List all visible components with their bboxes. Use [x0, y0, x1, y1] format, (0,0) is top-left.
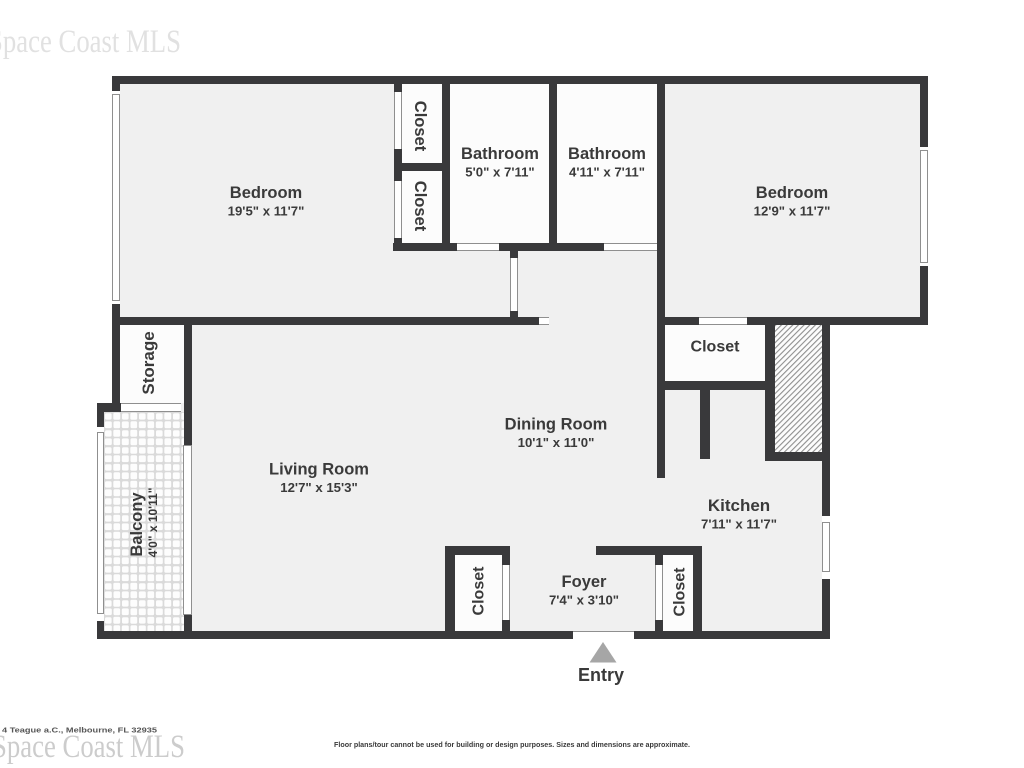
- svg-text:4 Teague a.C., Melbourne, FL 3: 4 Teague a.C., Melbourne, FL 32935: [2, 726, 157, 735]
- svg-text:Closet: Closet: [672, 567, 689, 617]
- svg-text:12'7" x 15'3": 12'7" x 15'3": [280, 480, 357, 495]
- svg-text:19'5" x 11'7": 19'5" x 11'7": [228, 204, 305, 219]
- svg-text:Bedroom: Bedroom: [230, 184, 302, 202]
- svg-text:Bathroom: Bathroom: [461, 145, 539, 163]
- svg-text:Closet: Closet: [471, 566, 488, 616]
- svg-text:Bathroom: Bathroom: [568, 145, 646, 163]
- svg-text:Dining Room: Dining Room: [505, 415, 608, 433]
- svg-text:Living Room: Living Room: [269, 460, 369, 478]
- svg-text:7'4" x 3'10": 7'4" x 3'10": [549, 593, 619, 608]
- svg-text:Balcony: Balcony: [128, 492, 146, 557]
- svg-text:Entry: Entry: [578, 665, 624, 685]
- svg-text:Closet: Closet: [411, 181, 429, 232]
- svg-text:5'0" x 7'11": 5'0" x 7'11": [465, 165, 534, 180]
- svg-text:7'11" x 11'7": 7'11" x 11'7": [701, 517, 777, 532]
- svg-text:4'11" x 7'11": 4'11" x 7'11": [569, 165, 645, 180]
- svg-text:Closet: Closet: [691, 339, 741, 356]
- svg-text:Floor plans/tour cannot be use: Floor plans/tour cannot be used for buil…: [334, 740, 690, 749]
- svg-text:Bedroom: Bedroom: [756, 184, 828, 202]
- svg-text:4'0" x 10'11": 4'0" x 10'11": [146, 488, 160, 558]
- svg-text:Storage: Storage: [139, 331, 158, 394]
- svg-text:Space Coast MLS: Space Coast MLS: [0, 24, 181, 60]
- svg-text:Foyer: Foyer: [562, 573, 608, 591]
- svg-text:10'1" x 11'0": 10'1" x 11'0": [518, 435, 595, 450]
- svg-text:Kitchen: Kitchen: [708, 496, 770, 515]
- svg-text:12'9" x 11'7": 12'9" x 11'7": [754, 204, 831, 219]
- svg-text:Closet: Closet: [411, 101, 429, 152]
